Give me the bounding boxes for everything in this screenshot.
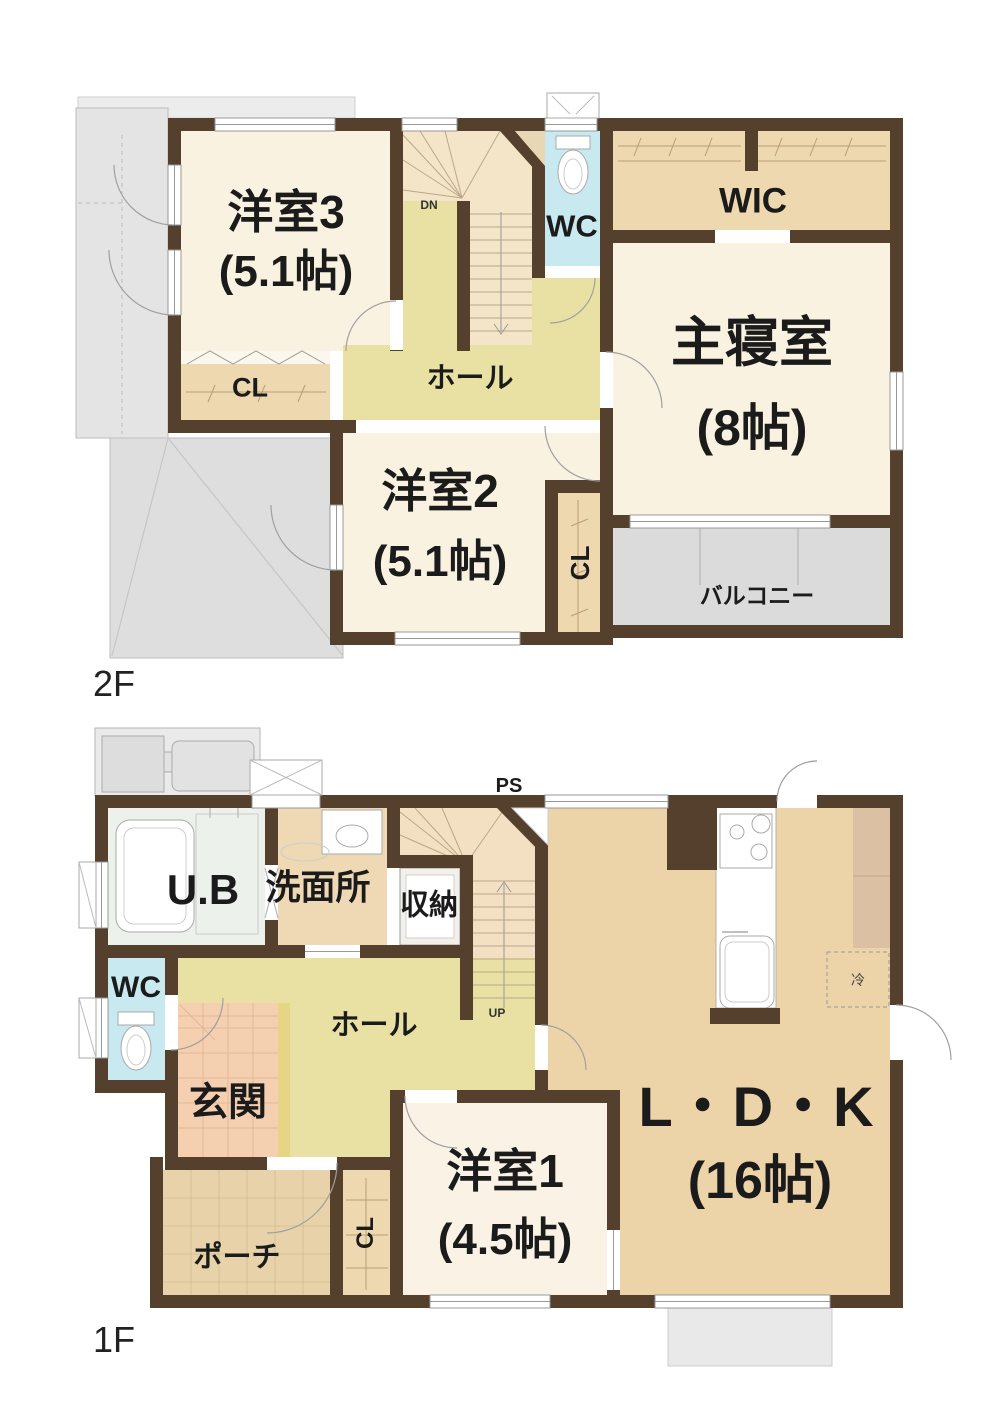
terrace-step (668, 1308, 832, 1366)
kitchen-counter-icon (716, 806, 776, 1008)
water-heater-icon (95, 728, 260, 796)
room-label-clvert-2f: CL (567, 546, 593, 581)
room-label-yoshitsu1: 洋室1 (446, 1148, 564, 1194)
fridge-label: 冷 (851, 973, 865, 987)
ps-label: PS (496, 776, 523, 796)
floorplan-page: 洋室3 (5.1帖) CL ホール DN WC WIC 主寝室 (8帖) 洋室2… (0, 0, 1000, 1414)
room-label-senmenjo: 洗面所 (265, 871, 370, 906)
room-size-yoshitsu3: (5.1帖) (219, 250, 353, 294)
room-size-ldk: (16帖) (688, 1155, 832, 1207)
room-label-wic: WIC (719, 184, 787, 219)
stair-label-dn: DN (420, 199, 437, 211)
room-size-yoshitsu1: (4.5帖) (438, 1218, 572, 1262)
room-label-porch: ポーチ (193, 1244, 280, 1273)
room-label-clvert-1f: CL (354, 1217, 378, 1249)
room-label-yoshitsu2: 洋室2 (381, 468, 499, 514)
roof-lower-left (110, 438, 343, 658)
room-size-yoshitsu2: (5.1帖) (373, 540, 507, 584)
room-label-wc-2f: WC (546, 211, 598, 242)
sink-icon (720, 936, 774, 1008)
kitchen-cabinet-fill (853, 808, 890, 948)
room-label-hall-1f: ホール (330, 1012, 417, 1041)
stove-icon (720, 814, 772, 868)
room-label-cl-2f: CL (232, 375, 268, 402)
floorplan-drawing (0, 0, 1000, 1414)
room-label-shuno: 収納 (400, 892, 458, 921)
room-yoshitsu1-fill (403, 1103, 607, 1295)
room-label-shushinshitsu: 主寝室 (671, 316, 833, 370)
room-label-ldk: L・D・K (638, 1079, 875, 1135)
floor-label-1f: 1F (93, 1322, 135, 1358)
genkan-step (278, 1003, 290, 1157)
balcony-fill (613, 528, 890, 625)
room-label-wc-1f: WC (111, 973, 161, 1003)
room-label-hall-2f: ホール (426, 365, 513, 394)
room-label-genkan: 玄関 (189, 1084, 267, 1123)
porch-fill (163, 1170, 330, 1295)
stair-label-up: UP (489, 1007, 506, 1019)
floor-label-2f: 2F (93, 666, 135, 702)
room-label-yoshitsu3: 洋室3 (227, 189, 345, 235)
room-label-balcony: バルコニー (700, 585, 815, 608)
room-label-ub: U.B (167, 869, 239, 911)
room-size-shushinshitsu: (8帖) (696, 403, 807, 453)
